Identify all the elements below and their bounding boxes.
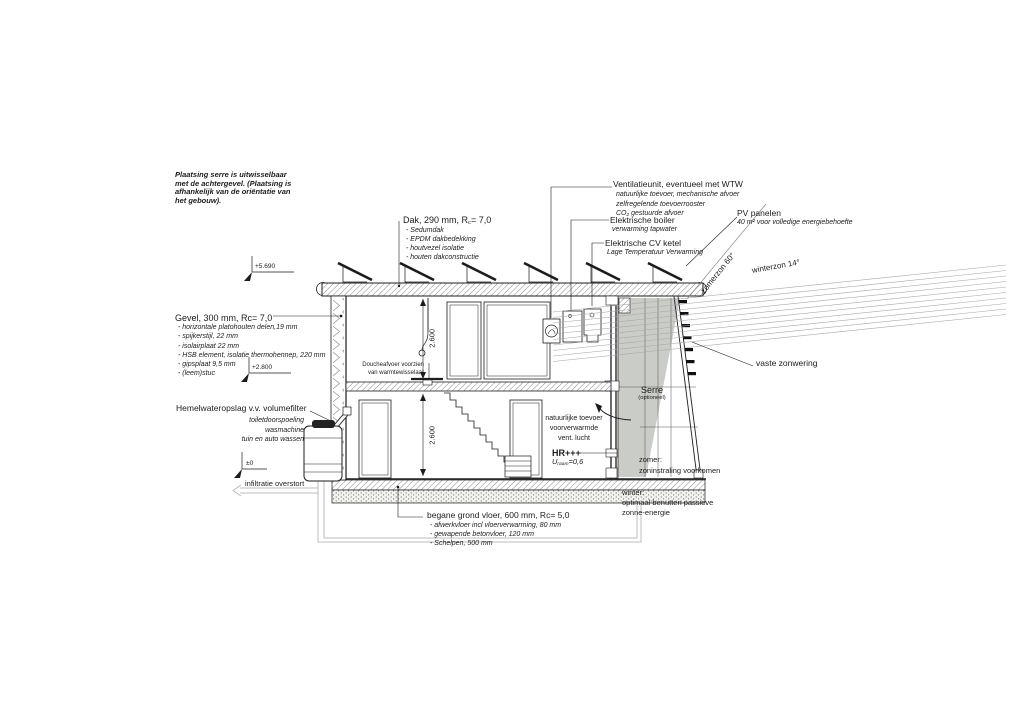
roof-slab <box>317 283 707 297</box>
serre-label: Serre (optioneel) <box>634 385 670 402</box>
rainwater-label: Hemelwateropslag v.v. volumefilter <box>176 404 307 414</box>
elevation-ground-value: ±0 <box>246 460 253 467</box>
air-supply-label: natuurlijke toevoer voorverwarmde vent. … <box>541 414 607 444</box>
infiltration-label: infiltratie overstort <box>245 480 304 489</box>
elevation-roof-value: +5.690 <box>255 263 275 270</box>
ground-floor-label: begane grond vloer, 600 mm, Rc= 5,0 - af… <box>427 511 569 548</box>
roof-label: Dak, 290 mm, Rc= 7,0 - Sedumdak - EPDM d… <box>403 215 491 263</box>
ventilation-label: Ventilatieunit, eventueel met WTW natuur… <box>613 180 743 219</box>
pv-panels <box>338 263 682 282</box>
ground-floor-height-dimension: 2.600 <box>429 421 438 449</box>
rainwater-label-items: toiletdoorspoeling wasmachine tuin en au… <box>204 416 304 445</box>
placement-note: Plaatsing serre is uitwisselbaar met de … <box>175 171 291 206</box>
shower-drain-label: Doucheafvoer voorzien van warmtewisselaa… <box>352 362 424 378</box>
sunshade-label: vaste zonwering <box>756 359 817 369</box>
section-drawing-page: Plaatsing serre is uitwisselbaar met de … <box>0 0 1024 724</box>
intermediate-floor-slab <box>346 382 611 391</box>
roof-label-title: Dak, 290 mm, Rc= 7,0 <box>403 215 491 227</box>
elevation-first-floor-value: +2.800 <box>252 364 272 371</box>
ventilation-label-title: Ventilatieunit, eventueel met WTW <box>613 180 743 190</box>
pv-label: PV panelen 40 m² voor volledige energieb… <box>737 209 853 227</box>
hr-glazing-label: HR+++ Uraam=0,6 <box>552 448 583 468</box>
section-drawing <box>0 0 1024 724</box>
upper-floor-height-dimension: 2.600 <box>429 324 438 352</box>
winter-note: winter: optimaal benutten passieve zonne… <box>622 488 713 518</box>
infiltration-arrow-icon <box>233 485 241 496</box>
fixed-louvers-icon <box>679 300 697 375</box>
dimension-line-lower <box>420 394 426 476</box>
facade-label: Gevel, 300 mm, Rc= 7,0 - horizontale pla… <box>175 313 325 378</box>
boiler-label: Elektrische boiler verwarming tapwater <box>610 216 677 234</box>
summer-note: zomer: zoninstraling voorkomen <box>639 455 720 477</box>
cv-ketel-label: Elektrische CV ketel Lage Temperatuur Ve… <box>605 239 703 257</box>
